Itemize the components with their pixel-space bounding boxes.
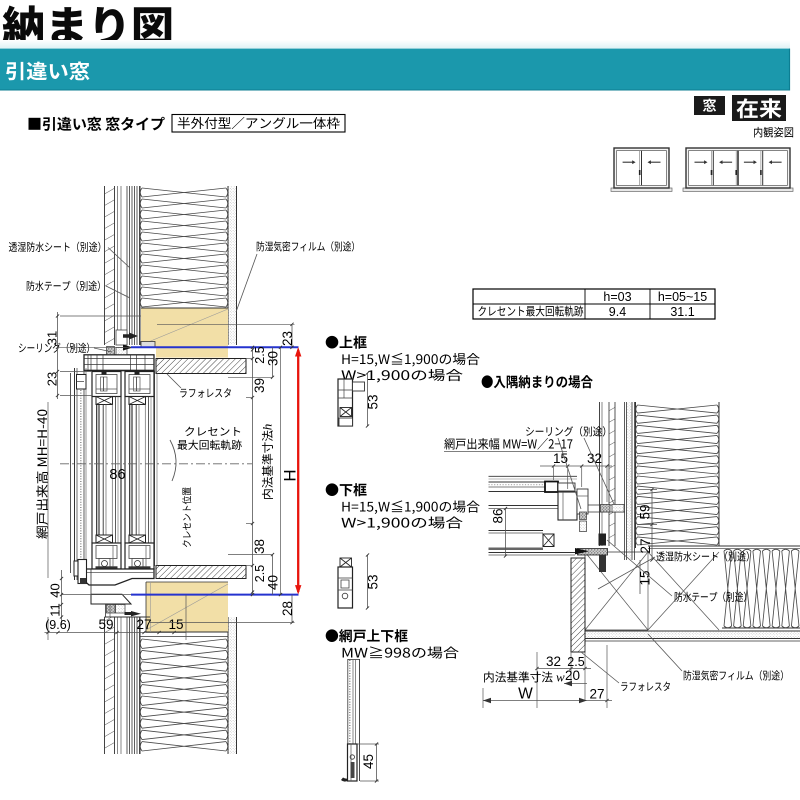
svg-text:53: 53 — [366, 394, 381, 409]
svg-text:28: 28 — [280, 601, 295, 616]
svg-text:h=03: h=03 — [603, 290, 631, 304]
svg-text:53: 53 — [366, 574, 381, 589]
svg-text:39: 39 — [252, 378, 267, 393]
svg-text:31.1: 31.1 — [670, 305, 694, 319]
svg-text:27: 27 — [589, 687, 604, 702]
svg-text:40: 40 — [266, 575, 281, 590]
svg-text:(9.6): (9.6) — [45, 618, 71, 632]
svg-text:38: 38 — [252, 539, 267, 554]
svg-text:31: 31 — [45, 331, 60, 345]
svg-text:15: 15 — [553, 451, 568, 466]
svg-text:H: H — [281, 469, 300, 481]
svg-text:W: W — [518, 686, 533, 703]
svg-text:86: 86 — [109, 467, 125, 483]
svg-text:59: 59 — [638, 504, 653, 519]
svg-text:23: 23 — [45, 372, 60, 386]
svg-text:40: 40 — [48, 583, 63, 597]
svg-text:27: 27 — [638, 538, 653, 553]
svg-text:30: 30 — [266, 351, 281, 366]
svg-text:15: 15 — [168, 617, 183, 632]
svg-text:27: 27 — [136, 617, 151, 632]
svg-text:9.4: 9.4 — [609, 305, 626, 319]
svg-text:20: 20 — [565, 668, 580, 683]
svg-text:h=05~15: h=05~15 — [658, 290, 707, 304]
svg-text:h: h — [260, 424, 275, 431]
svg-text:11: 11 — [48, 603, 63, 617]
svg-text:w: w — [556, 670, 565, 685]
svg-text:86: 86 — [491, 508, 506, 523]
svg-text:45: 45 — [361, 754, 376, 769]
svg-text:23: 23 — [280, 331, 295, 346]
svg-text:32: 32 — [546, 654, 561, 669]
svg-text:2.5: 2.5 — [567, 655, 584, 669]
svg-text:59: 59 — [98, 617, 113, 632]
svg-text:32: 32 — [587, 451, 602, 466]
